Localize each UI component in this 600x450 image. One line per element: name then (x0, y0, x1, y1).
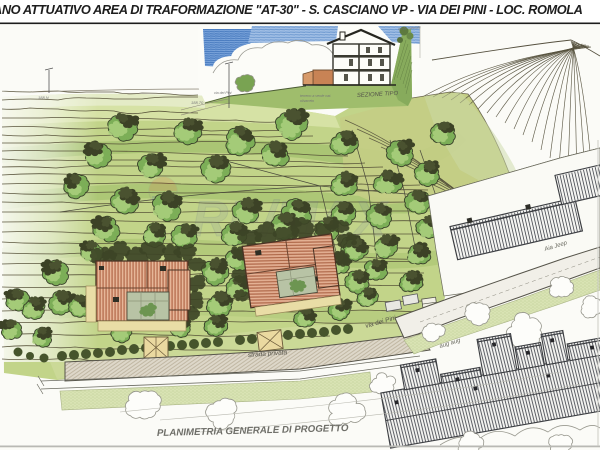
svg-text:188,70: 188,70 (191, 100, 204, 105)
svg-text:olivaceto: olivaceto (300, 99, 314, 103)
svg-text:ANO ATTUATIVO AREA DI TRAFORMA: ANO ATTUATIVO AREA DI TRAFORMAZIONE "AT-… (0, 2, 583, 17)
svg-text:terreno a verde nat.: terreno a verde nat. (300, 94, 331, 98)
svg-text:188,N: 188,N (38, 95, 49, 100)
